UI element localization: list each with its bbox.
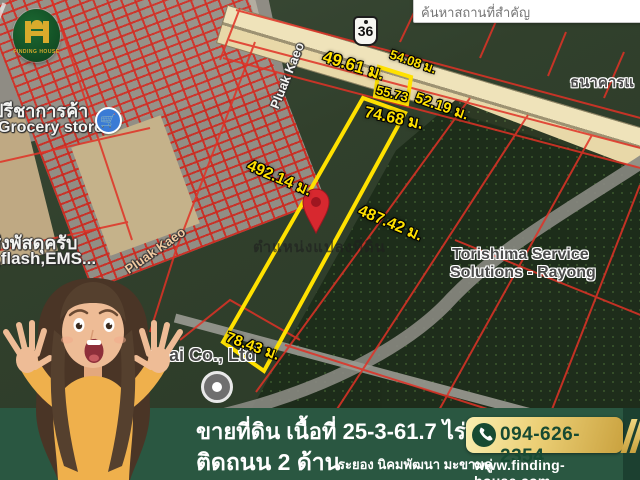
plot-position-watermark: ตำแหน่งแปลงที่ดิน bbox=[253, 235, 386, 259]
website-url: www.finding-house.com bbox=[474, 457, 640, 480]
finding-house-logo: FINDING HOUSE bbox=[13, 9, 60, 62]
logo-text: FINDING HOUSE bbox=[13, 49, 60, 55]
parcel-shop-label-en: ,flash,EMS... bbox=[0, 249, 96, 269]
house-gate-icon bbox=[24, 18, 50, 44]
bank-label: ธนาคารแ bbox=[570, 70, 634, 94]
highway-36-badge: 36 bbox=[353, 16, 378, 46]
phone-icon bbox=[472, 423, 496, 447]
torishima-label-line2: Solutions - Rayong bbox=[450, 264, 596, 282]
search-input[interactable] bbox=[414, 0, 640, 22]
map-search-box[interactable] bbox=[413, 0, 640, 23]
grocery-label-en: Grocery store bbox=[0, 119, 103, 137]
sale-subheadline: ติดถนน 2 ด้าน bbox=[196, 445, 340, 480]
torishima-label-line1: Torishima Service bbox=[452, 246, 589, 264]
location-text: ระยอง นิคมพัฒนา มะขามคู่ bbox=[338, 454, 493, 475]
sale-headline: ขายที่ดิน เนื้อที่ 25-3-61.7 ไร่ bbox=[196, 414, 466, 449]
business-poi-icon bbox=[201, 371, 233, 403]
grocery-store-icon: 🛒 bbox=[95, 107, 122, 134]
person-photo bbox=[0, 270, 190, 480]
phone-pill: 094-626-2354 bbox=[466, 417, 623, 453]
ad-canvas: Pluak Kaeo Pluak Kaeo ปรีชาการค้า Grocer… bbox=[0, 0, 640, 480]
